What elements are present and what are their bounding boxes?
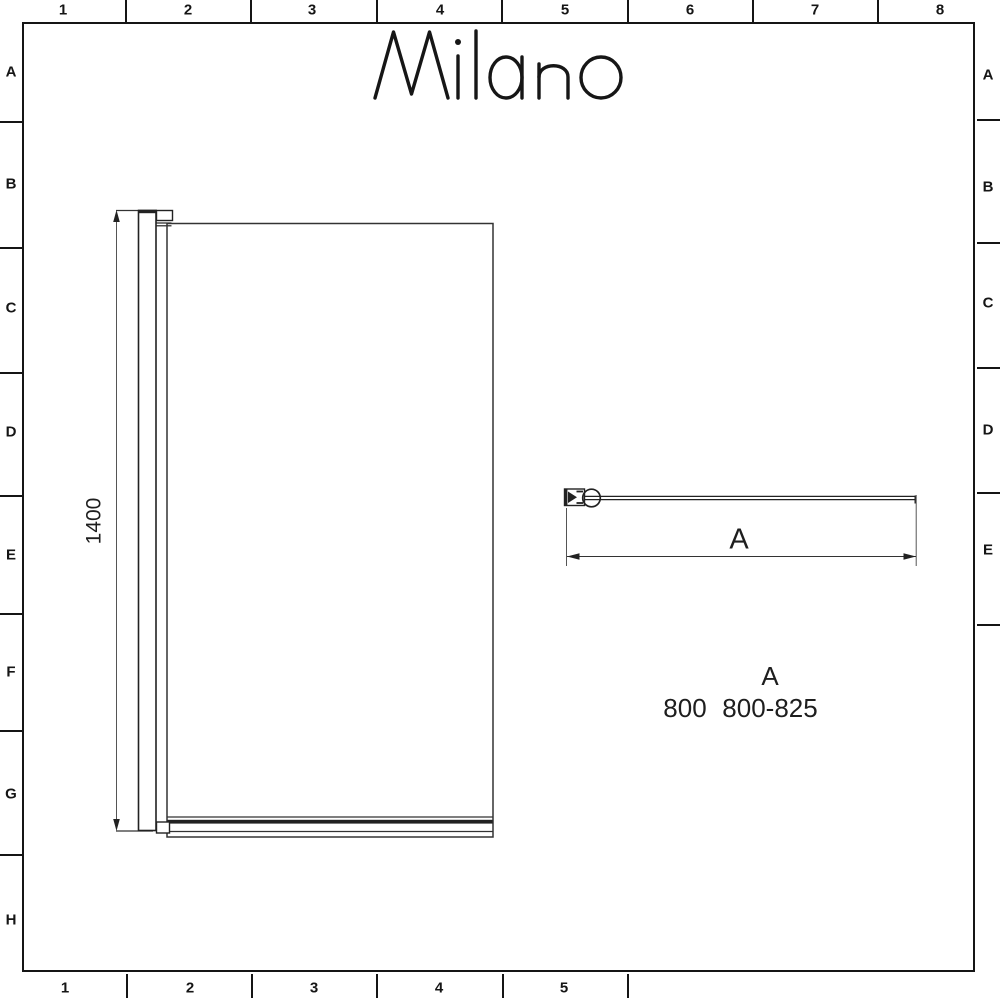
front-elevation-view: [80, 195, 510, 855]
grid-label-bottom-4: 4: [435, 981, 443, 996]
grid-label-right-A: A: [983, 68, 994, 83]
grid-label-top-2: 2: [184, 3, 192, 18]
grid-label-top-8: 8: [936, 3, 944, 18]
wall-profile-top-cap: [138, 210, 157, 213]
size-table-header: A: [761, 663, 778, 689]
grid-label-left-D: D: [6, 425, 17, 440]
wall-profile: [139, 211, 157, 831]
bottom-seal-band: [168, 820, 493, 824]
grid-label-bottom-1: 1: [61, 981, 69, 996]
grid-tick-right: [977, 624, 1000, 626]
grid-label-bottom-3: 3: [310, 981, 318, 996]
milano-logo: Milano: [372, 29, 624, 101]
grid-tick-left: [0, 372, 24, 374]
technical-drawing-sheet: 12345678 12345 ABCDEFGH ABCDE Milano: [0, 0, 1000, 1000]
grid-tick-right: [977, 242, 1000, 244]
bottom-bracket: [157, 822, 170, 833]
grid-tick-left: [0, 854, 24, 856]
grid-label-top-5: 5: [561, 3, 569, 18]
grid-tick-right: [977, 119, 1000, 121]
grid-tick-bottom: [376, 974, 378, 998]
grid-tick-bottom: [126, 974, 128, 998]
grid-label-right-B: B: [983, 180, 994, 195]
grid-label-top-6: 6: [686, 3, 694, 18]
grid-tick-top: [250, 0, 252, 24]
dimension-arrow-left: [567, 553, 580, 559]
grid-label-left-G: G: [5, 787, 17, 802]
grid-label-right-E: E: [983, 543, 993, 558]
grid-label-bottom-2: 2: [186, 981, 194, 996]
grid-tick-top: [877, 0, 879, 24]
grid-tick-left: [0, 495, 24, 497]
grid-label-top-4: 4: [436, 3, 444, 18]
grid-label-right-D: D: [983, 423, 994, 438]
grid-tick-bottom: [627, 974, 629, 998]
grid-tick-bottom: [251, 974, 253, 998]
size-table-size-value: 800: [663, 695, 706, 721]
grid-label-left-E: E: [6, 548, 16, 563]
grid-tick-left: [0, 247, 24, 249]
grid-tick-top: [125, 0, 127, 24]
grid-tick-left: [0, 613, 24, 615]
plan-view: [550, 480, 950, 575]
grid-tick-top: [752, 0, 754, 24]
height-dimension-label: 1400: [84, 498, 105, 545]
grid-label-left-H: H: [6, 913, 17, 928]
grid-tick-top: [627, 0, 629, 24]
glass-panel: [167, 224, 493, 838]
grid-tick-top: [376, 0, 378, 24]
size-table-range-value: 800-825: [722, 695, 817, 721]
grid-label-top-3: 3: [308, 3, 316, 18]
dimension-arrow-up: [113, 210, 120, 222]
top-bracket: [157, 211, 173, 221]
grid-label-right-C: C: [983, 296, 994, 311]
grid-tick-bottom: [502, 974, 504, 998]
grid-label-left-B: B: [6, 177, 17, 192]
grid-tick-left: [0, 121, 24, 123]
grid-label-top-7: 7: [811, 3, 819, 18]
grid-label-left-F: F: [6, 665, 15, 680]
grid-label-top-1: 1: [59, 3, 67, 18]
grid-label-bottom-5: 5: [560, 981, 568, 996]
pivot-hinge-circle: [583, 489, 601, 507]
dimension-arrow-down: [113, 819, 120, 831]
grid-tick-right: [977, 367, 1000, 369]
width-dimension-label: A: [729, 526, 748, 555]
dimension-arrow-right: [904, 553, 917, 559]
grid-label-left-A: A: [6, 65, 17, 80]
grid-tick-right: [977, 492, 1000, 494]
milano-logo-glyphs: [372, 29, 624, 101]
grid-label-left-C: C: [6, 301, 17, 316]
grid-tick-top: [501, 0, 503, 24]
grid-tick-left: [0, 730, 24, 732]
